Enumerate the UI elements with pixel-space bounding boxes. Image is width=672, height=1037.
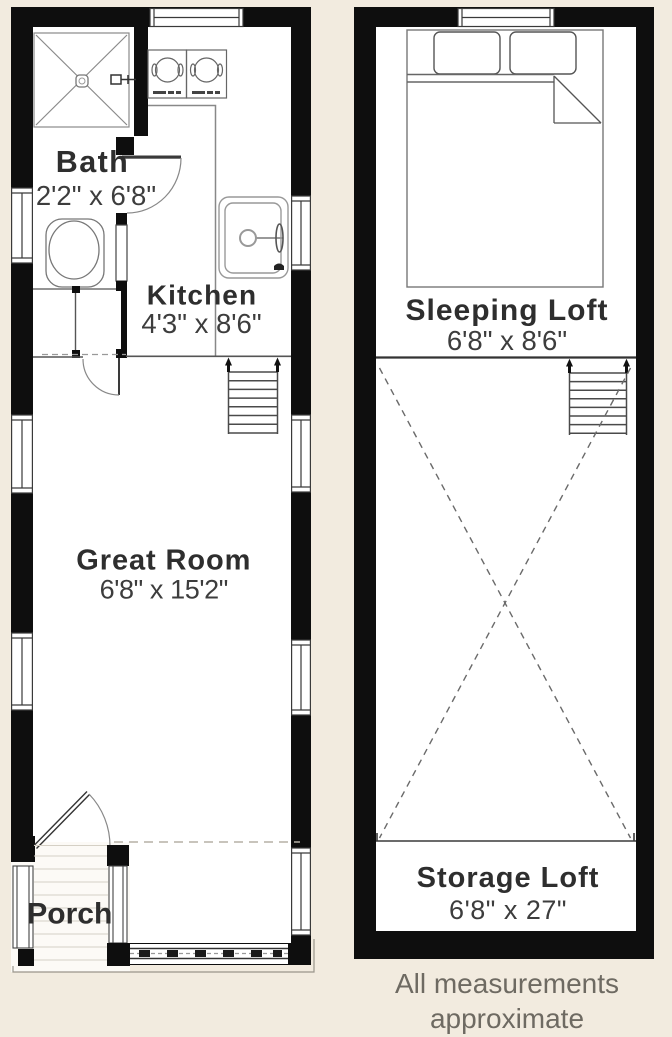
svg-text:Sleeping Loft: Sleeping Loft [406,294,609,327]
svg-text:Great Room: Great Room [76,545,251,577]
svg-text:Porch: Porch [27,898,112,931]
svg-text:All measurements: All measurements [395,968,619,999]
svg-text:approximate: approximate [430,1003,584,1034]
svg-text:Kitchen: Kitchen [147,280,257,311]
svg-text:4'3" x 8'6": 4'3" x 8'6" [141,308,261,339]
svg-text:Bath: Bath [56,145,129,179]
svg-text:Storage Loft: Storage Loft [417,862,600,894]
svg-text:6'8" x 27": 6'8" x 27" [449,895,567,925]
svg-text:6'8" x 8'6": 6'8" x 8'6" [447,325,567,356]
svg-text:2'2" x 6'8": 2'2" x 6'8" [36,180,156,211]
svg-text:6'8" x 15'2": 6'8" x 15'2" [100,575,228,605]
